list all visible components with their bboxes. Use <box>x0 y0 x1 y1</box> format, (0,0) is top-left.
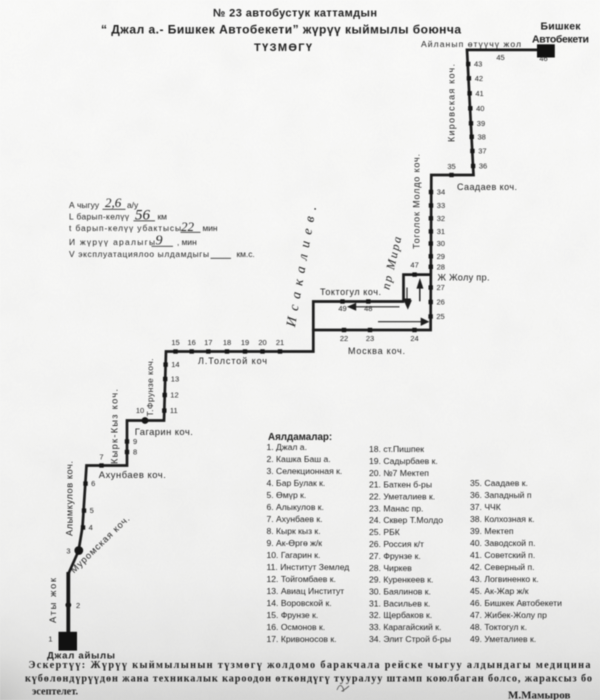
svg-text:18. ст.Пишпек: 18. ст.Пишпек <box>369 444 424 454</box>
svg-text:2: 2 <box>76 601 80 610</box>
svg-text:48: 48 <box>364 304 372 313</box>
svg-text:26. Россия к/т: 26. Россия к/т <box>369 539 424 549</box>
svg-text:31. Васильев к.: 31. Васильев к. <box>369 598 430 608</box>
svg-text:46. Бишкек Автобекети: 46. Бишкек Автобекети <box>470 598 562 608</box>
svg-text:25: 25 <box>436 312 444 321</box>
svg-text:28. Чиркев: 28. Чиркев <box>369 563 412 573</box>
svg-text:Москва коч.: Москва коч. <box>348 346 405 356</box>
svg-text:км: км <box>158 212 168 222</box>
svg-text:1: 1 <box>48 635 52 644</box>
svg-text:16. Осмонов к.: 16. Осмонов к. <box>267 622 326 632</box>
svg-text:12: 12 <box>170 391 178 400</box>
svg-text:Л.Толстой коч: Л.Толстой коч <box>198 356 267 366</box>
svg-text:33: 33 <box>437 201 445 210</box>
svg-text:4. Бар Булак к.: 4. Бар Булак к. <box>267 478 326 488</box>
svg-text:4: 4 <box>89 523 93 532</box>
svg-text:40. Заводской п.: 40. Заводской п. <box>470 538 536 548</box>
svg-text:7: 7 <box>99 453 103 462</box>
svg-text:16: 16 <box>188 338 196 347</box>
svg-text:L барып-келүү: L барып-келүү <box>69 212 130 222</box>
svg-text:5. Өмүр к.: 5. Өмүр к. <box>267 490 307 500</box>
svg-text:30. Баялинов к.: 30. Баялинов к. <box>369 587 431 597</box>
svg-text:22. Уметалиев к.: 22. Уметалиев к. <box>369 492 435 502</box>
svg-text:37: 37 <box>478 147 486 156</box>
svg-text:13. Авиац Институт: 13. Авиац Институт <box>267 586 345 596</box>
svg-text:49. Уметалиев к.: 49. Уметалиев к. <box>470 634 536 644</box>
svg-text:күбөлөндүрүүдөн жана техникалы: күбөлөндүрүүдөн жана техникалык кароодон… <box>25 674 592 685</box>
svg-text:Аты жок: Аты жок <box>47 577 58 623</box>
svg-text:41: 41 <box>475 89 483 98</box>
svg-text:38. Колхозная к.: 38. Колхозная к. <box>470 514 534 524</box>
svg-text:21. Баткен б-ры: 21. Баткен б-ры <box>369 480 432 490</box>
svg-text:38: 38 <box>478 132 486 141</box>
svg-text:47: 47 <box>410 261 418 270</box>
svg-text:30: 30 <box>437 239 445 248</box>
svg-text:45: 45 <box>496 53 504 62</box>
svg-text:Автобекети: Автобекети <box>532 34 589 46</box>
svg-text:Кырк-Кыз коч.: Кырк-Кыз коч. <box>109 389 119 464</box>
svg-text:35: 35 <box>447 162 455 171</box>
svg-text:37. ЧЧК: 37. ЧЧК <box>470 502 501 512</box>
svg-text:Токтогул коч.: Токтогул коч. <box>320 287 381 297</box>
svg-text:23: 23 <box>366 334 374 343</box>
svg-text:22: 22 <box>181 219 195 234</box>
svg-text:29: 29 <box>437 252 445 261</box>
svg-text:11: 11 <box>170 406 178 415</box>
svg-text:Саадаев коч.: Саадаев коч. <box>457 182 517 192</box>
svg-text:24: 24 <box>410 334 418 343</box>
svg-text:2,6: 2,6 <box>105 195 122 210</box>
svg-text:40: 40 <box>476 104 484 113</box>
svg-text:1. Джал а.: 1. Джал а. <box>267 442 307 452</box>
svg-text:43. Логвиненко к.: 43. Логвиненко к. <box>470 574 539 584</box>
svg-text:t барып-келүү убактысы: t барып-келүү убактысы <box>69 223 181 233</box>
svg-text:43: 43 <box>474 60 482 69</box>
svg-text:45. Ак-Жар ж/к: 45. Ак-Жар ж/к <box>470 586 529 596</box>
svg-text:48. Токтогул к.: 48. Токтогул к. <box>470 622 527 632</box>
svg-text:, мин: , мин <box>177 237 197 247</box>
svg-text:ТҮЗМӨГҮ: ТҮЗМӨГҮ <box>254 42 313 54</box>
svg-text:46: 46 <box>539 54 547 63</box>
svg-text:20: 20 <box>258 338 266 347</box>
svg-text:31: 31 <box>437 227 445 236</box>
svg-text:км.с.: км.с. <box>237 249 255 259</box>
svg-text:35. Саадаев к.: 35. Саадаев к. <box>470 478 528 488</box>
svg-text:32: 32 <box>437 214 445 223</box>
svg-text:47. Жибек-Жолу пр: 47. Жибек-Жолу пр <box>470 610 547 620</box>
svg-text:3: 3 <box>66 547 70 556</box>
svg-text:№ 23 автобустук каттамдын: № 23 автобустук каттамдын <box>213 8 377 20</box>
svg-text:29. Куренкеев к.: 29. Куренкеев к. <box>369 575 433 585</box>
svg-text:11. Институт Землед: 11. Институт Землед <box>267 562 350 572</box>
svg-text:А чыгуу: А чыгуу <box>69 200 100 210</box>
svg-text:эсептелет.: эсептелет. <box>32 687 78 698</box>
svg-text:9. Ак-Өргө ж/к: 9. Ак-Өргө ж/к <box>267 538 323 548</box>
svg-text:6. Алыкулов к.: 6. Алыкулов к. <box>267 502 324 512</box>
svg-text:Эскертүү: Жүрүү кыймылынын түз: Эскертүү: Жүрүү кыймылынын түзмөгү жолдо… <box>29 660 591 671</box>
svg-text:Алымкулов коч.: Алымкулов коч. <box>65 461 75 536</box>
svg-text:Гагарин коч.: Гагарин коч. <box>135 426 193 437</box>
svg-text:Айланып өтүүчү жол: Айланып өтүүчү жол <box>421 39 521 49</box>
svg-text:39: 39 <box>477 119 485 128</box>
svg-text:27: 27 <box>437 283 445 292</box>
svg-text:36: 36 <box>479 162 487 171</box>
svg-text:5: 5 <box>90 506 94 515</box>
svg-text:34. Элит Строй б-ры: 34. Элит Строй б-ры <box>369 634 451 644</box>
svg-text:“ Джал а.- Бишкек Автобекети”: “ Джал а.- Бишкек Автобекети” жүрүү кыйм… <box>101 23 461 37</box>
svg-text:42. Северный п.: 42. Северный п. <box>470 562 535 572</box>
svg-text:6: 6 <box>91 479 95 488</box>
svg-text:41. Советский п.: 41. Советский п. <box>470 550 535 560</box>
svg-text:28: 28 <box>437 262 445 271</box>
svg-text:49: 49 <box>338 304 346 313</box>
svg-text:10: 10 <box>136 406 144 415</box>
svg-text:М.Мамыров: М.Мамыров <box>508 690 570 700</box>
svg-text:10. Гагарин к.: 10. Гагарин к. <box>267 550 321 560</box>
svg-text:42: 42 <box>475 74 483 83</box>
svg-text:22: 22 <box>340 334 348 343</box>
svg-text:27. Фрунзе к.: 27. Фрунзе к. <box>369 551 421 561</box>
svg-text:3. Селекционная к.: 3. Селекционная к. <box>267 466 343 476</box>
svg-text:25. РБК: 25. РБК <box>369 527 400 537</box>
svg-text:15. Фрунзе к.: 15. Фрунзе к. <box>267 610 319 620</box>
svg-text:14. Воровской к.: 14. Воровской к. <box>267 598 332 608</box>
svg-text:32. Щербаков к.: 32. Щербаков к. <box>369 610 432 620</box>
svg-text:19. Садырбаев к.: 19. Садырбаев к. <box>369 456 438 466</box>
svg-text:12. Тойгомбаев к.: 12. Тойгомбаев к. <box>267 574 336 584</box>
svg-text:Т.Фрунзе коч.: Т.Фрунзе коч. <box>145 359 155 417</box>
svg-text:Ж Жолу пр.: Ж Жолу пр. <box>438 273 490 283</box>
svg-text:Бишкек: Бишкек <box>541 21 582 33</box>
svg-text:мин: мин <box>203 223 218 233</box>
svg-text:Ахунбаев коч.: Ахунбаев коч. <box>99 469 166 480</box>
svg-text:17: 17 <box>204 338 212 347</box>
svg-text:Тоголок Молдо коч.: Тоголок Молдо коч. <box>412 154 422 249</box>
svg-text:34: 34 <box>437 188 445 197</box>
svg-text:17. Кривоносов к.: 17. Кривоносов к. <box>267 634 337 644</box>
svg-text:24. Сквер Т.Молдо: 24. Сквер Т.Молдо <box>369 515 443 525</box>
svg-text:7. Ахунбаев к.: 7. Ахунбаев к. <box>267 514 323 524</box>
svg-text:9: 9 <box>133 437 137 446</box>
svg-text:V эксплуатациялоо ылдамдыгы: V эксплуатациялоо ылдамдыгы <box>69 249 209 259</box>
svg-text:13: 13 <box>171 375 179 384</box>
svg-text:2. Кашка Баш а.: 2. Кашка Баш а. <box>267 454 331 464</box>
svg-text:23. Манас пр.: 23. Манас пр. <box>369 503 423 513</box>
svg-text:8. Кырк кыз к.: 8. Кырк кыз к. <box>267 526 321 536</box>
svg-text:14: 14 <box>171 360 179 369</box>
svg-text:8: 8 <box>133 448 137 457</box>
svg-text:26: 26 <box>437 298 445 307</box>
svg-text:20. №7 Мектеп: 20. №7 Мектеп <box>369 468 429 478</box>
svg-text:21: 21 <box>276 338 284 347</box>
svg-text:15: 15 <box>171 338 179 347</box>
svg-text:19: 19 <box>241 338 249 347</box>
svg-text:39. Мектеп: 39. Мектеп <box>470 526 514 536</box>
svg-text:36. Западный п: 36. Западный п <box>470 490 532 500</box>
svg-text:33. Карагайский к.: 33. Карагайский к. <box>369 622 441 632</box>
svg-text:18: 18 <box>223 338 231 347</box>
